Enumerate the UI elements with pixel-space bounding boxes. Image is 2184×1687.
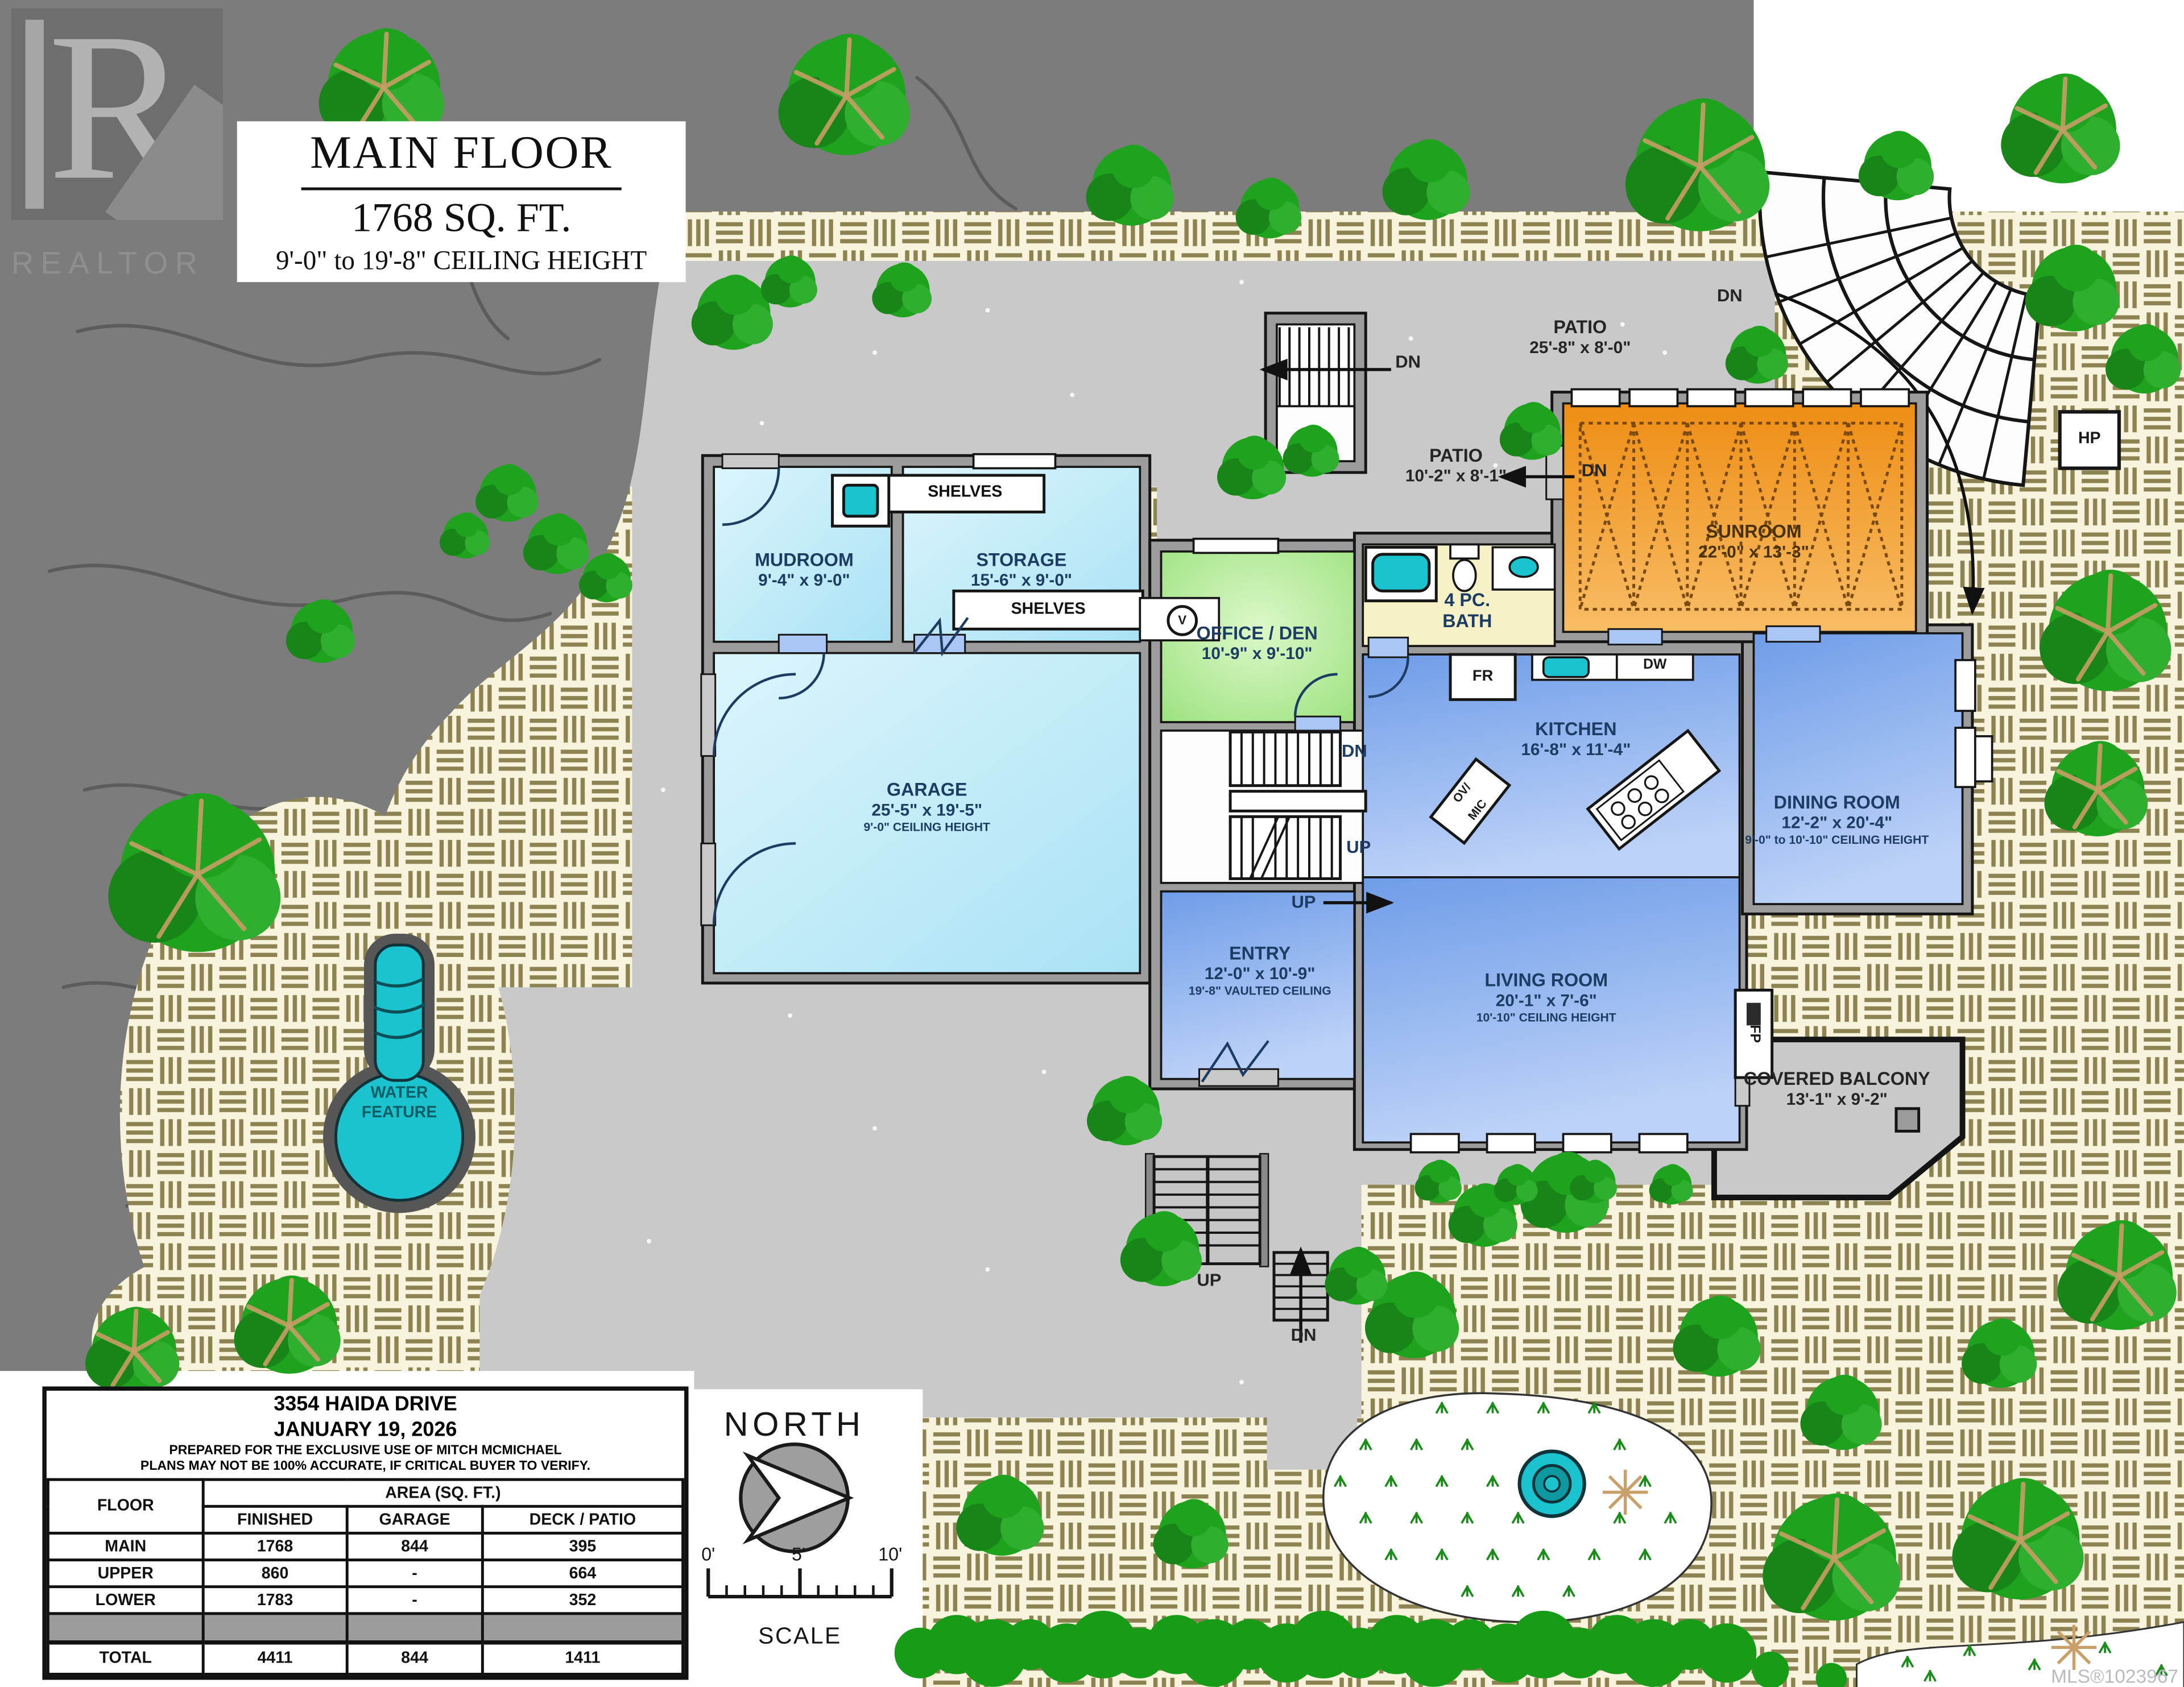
total-row: TOTAL4411 8441411 [48, 1643, 682, 1674]
patio-small-label: PATIO10'-2" x 8'-1" [1405, 445, 1507, 486]
scale-5: 5' [792, 1544, 805, 1565]
col-finished: FINISHED [203, 1506, 347, 1533]
dn-label-vestibule: DN [1395, 352, 1421, 373]
room-label-bath: 4 PC.BATH [1442, 589, 1492, 632]
room-label-mudroom: MUDROOM9'-4" x 9'-0" [755, 549, 854, 591]
vent-label: V [1178, 613, 1186, 628]
room-label-sunroom: SUNROOM22'-0" x 13'-3" [1698, 521, 1809, 562]
spacer-row [48, 1614, 682, 1643]
disclaimer-2: PLANS MAY NOT BE 100% ACCURATE, IF CRITI… [47, 1458, 684, 1473]
patio-top-label: PATIO25'-8" x 8'-0" [1529, 316, 1631, 358]
area-table: FLOOR AREA (SQ. FT.) FINISHED GARAGE DEC… [47, 1478, 684, 1676]
area-info-table: 3354 HAIDA DRIVE JANUARY 19, 2026 PREPAR… [42, 1386, 688, 1680]
plan-date: JANUARY 19, 2026 [47, 1419, 684, 1441]
room-label-entry: ENTRY12'-0" x 10'-9" 19'-8" VAULTED CEIL… [1189, 943, 1331, 998]
table-row: LOWER1783 -352 [48, 1587, 682, 1614]
col-area: AREA (SQ. FT.) [203, 1479, 682, 1506]
up-label-exterior: UP [1197, 1270, 1221, 1291]
dn-label-stone-stairs: DN [1717, 286, 1743, 307]
room-label-storage: STORAGE15'-6" x 9'-0" [971, 549, 1072, 591]
oven-label: OV/ [1450, 780, 1474, 805]
address: 3354 HAIDA DRIVE [47, 1394, 684, 1416]
disclaimer-1: PREPARED FOR THE EXCLUSIVE USE OF MITCH … [47, 1443, 684, 1457]
realtor-wordmark: REALTOR [11, 246, 205, 282]
scale-10: 10' [878, 1544, 902, 1565]
scale-0: 0' [701, 1544, 715, 1565]
dn-label-central: DN [1342, 741, 1367, 762]
col-garage: GARAGE [347, 1506, 482, 1533]
dn-label-exterior: DN [1291, 1325, 1317, 1346]
table-row: UPPER860 -664 [48, 1560, 682, 1587]
plan-title: MAIN FLOOR 1768 SQ. FT. 9'-0" to 19'-8" … [276, 125, 647, 278]
room-label-garage: GARAGE25'-5" x 19'-5" 9'-0" CEILING HEIG… [864, 779, 990, 835]
heat-pump-label: HP [2078, 430, 2101, 450]
col-deck: DECK / PATIO [482, 1506, 682, 1533]
plan-title-line1: MAIN FLOOR [301, 125, 621, 190]
realtor-logo: R REALTOR [11, 9, 229, 285]
col-floor: FLOOR [48, 1479, 203, 1533]
dn-label-patio: DN [1582, 461, 1607, 482]
dishwasher-label: DW [1643, 657, 1666, 674]
room-label-kitchen: KITCHEN16'-8" x 11'-4" [1521, 718, 1631, 760]
mls-watermark: MLS®1023967 [2051, 1666, 2178, 1687]
microwave-label: MIC [1465, 797, 1489, 823]
room-label-balcony: COVERED BALCONY13'-1" x 9'-2" [1744, 1068, 1930, 1109]
room-label-living: LIVING ROOM20'-1" x 7'-6" 10'-10" CEILIN… [1476, 969, 1616, 1025]
room-label-dining: DINING ROOM12'-2" x 20'-4" 9'-0" to 10'-… [1745, 791, 1929, 847]
room-label-office: OFFICE / DEN10'-9" x 9'-10" [1197, 623, 1318, 664]
floor-plan-page: R REALTOR MAIN FLOOR 1768 SQ. FT. 9'-0" … [0, 0, 2184, 1687]
water-feature-label: WATERFEATURE [362, 1085, 437, 1124]
up-label-central: UP [1346, 838, 1371, 859]
shelves-bottom-label: SHELVES [1011, 601, 1086, 620]
realtor-logo-mark: R [11, 9, 223, 220]
shelves-top-label: SHELVES [928, 484, 1002, 503]
fireplace-label: FP [1745, 1025, 1762, 1043]
up-label-entry: UP [1292, 892, 1316, 913]
plan-title-line3: 9'-0" to 19'-8" CEILING HEIGHT [276, 244, 647, 278]
fridge-label: FR [1472, 668, 1493, 686]
scale-word: SCALE [758, 1624, 842, 1651]
plan-title-line2: 1768 SQ. FT. [276, 193, 647, 244]
north-label: NORTH [724, 1406, 865, 1446]
table-row: MAIN1768 844395 [48, 1533, 682, 1560]
